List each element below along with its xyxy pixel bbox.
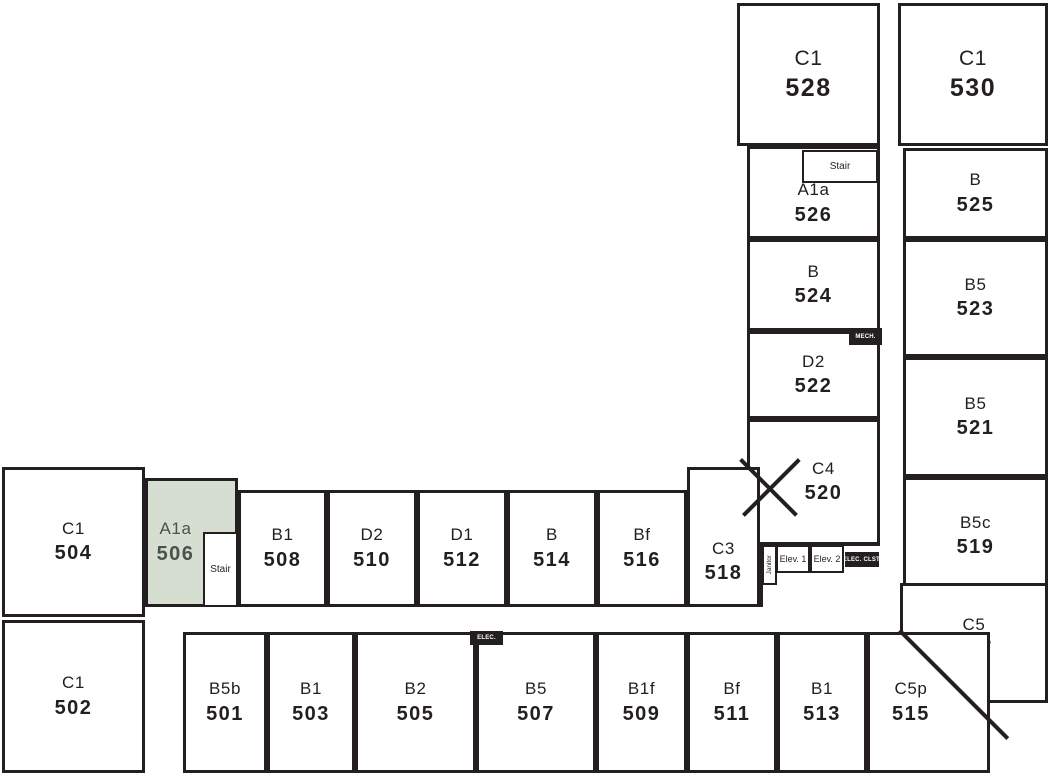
- unit-label: B5 521: [957, 393, 995, 441]
- mech-label: MECH.: [855, 334, 875, 340]
- unit-type: B1f: [623, 678, 661, 700]
- stair-room-upper: Stair: [802, 150, 878, 183]
- unit-number: 507: [517, 701, 555, 727]
- unit-510[interactable]: D2 510: [327, 490, 417, 607]
- unit-type: Bf: [714, 678, 751, 700]
- unit-number: 506: [157, 541, 195, 567]
- unit-number: 522: [795, 373, 833, 399]
- unit-label: D1 512: [443, 524, 481, 572]
- unit-number: 513: [803, 701, 841, 727]
- unit-number: 509: [623, 701, 661, 727]
- unit-number: 526: [795, 202, 833, 228]
- elevator-2-room: Elev. 2: [810, 545, 844, 573]
- unit-label: A1a 526: [795, 179, 833, 227]
- unit-type: B: [795, 261, 833, 283]
- unit-524[interactable]: B 524: [747, 239, 880, 331]
- unit-number: 501: [206, 701, 244, 727]
- unit-number: 511: [714, 701, 751, 727]
- unit-509[interactable]: B1f 509: [596, 632, 687, 773]
- unit-519[interactable]: B5c 519: [903, 477, 1048, 595]
- unit-type: B1: [803, 678, 841, 700]
- unit-type: C3: [705, 538, 743, 560]
- elec-closet: ELEC. CLST.: [845, 552, 879, 567]
- unit-type: C1: [785, 45, 831, 72]
- stair-label: Stair: [830, 161, 851, 172]
- unit-type: B2: [397, 678, 435, 700]
- unit-512[interactable]: D1 512: [417, 490, 507, 607]
- unit-number: 518: [705, 560, 743, 586]
- unit-label: B5 507: [517, 678, 555, 726]
- unit-type: Bf: [623, 524, 661, 546]
- unit-type: C4: [805, 458, 843, 480]
- unit-507[interactable]: B5 507: [476, 632, 596, 773]
- unit-502[interactable]: C1 502: [2, 620, 145, 773]
- unit-type: C5p: [892, 678, 930, 700]
- janitor-label: Janitor: [766, 555, 773, 575]
- unit-label: C1 530: [950, 45, 996, 105]
- unit-528[interactable]: C1 528: [737, 3, 880, 146]
- unit-type: A1a: [157, 518, 195, 540]
- elevator-2-label: Elev. 2: [814, 554, 841, 564]
- unit-label: B 525: [957, 169, 995, 217]
- unit-508[interactable]: B1 508: [238, 490, 327, 607]
- unit-label: B1f 509: [623, 678, 661, 726]
- unit-503[interactable]: B1 503: [267, 632, 355, 773]
- unit-type: D2: [353, 524, 391, 546]
- unit-label: B 524: [795, 261, 833, 309]
- unit-number: 521: [957, 415, 995, 441]
- unit-523[interactable]: B5 523: [903, 239, 1048, 357]
- unit-label: D2 522: [795, 351, 833, 399]
- unit-516[interactable]: Bf 516: [597, 490, 687, 607]
- unit-number: 520: [805, 480, 843, 506]
- unit-number: 519: [957, 534, 995, 560]
- unit-number: 510: [353, 547, 391, 573]
- unit-518[interactable]: C3 518: [687, 467, 760, 607]
- unit-type: B5b: [206, 678, 244, 700]
- unit-type: B5: [517, 678, 555, 700]
- stair-label: Stair: [210, 564, 231, 575]
- unit-type: B: [957, 169, 995, 191]
- unit-label: C1 502: [55, 672, 93, 720]
- unit-number: 514: [533, 547, 571, 573]
- elevator-1-label: Elev. 1: [780, 554, 807, 564]
- elec-closet-label: ELEC. CLST.: [845, 557, 879, 563]
- unit-521[interactable]: B5 521: [903, 357, 1048, 477]
- unit-514[interactable]: B 514: [507, 490, 597, 607]
- unit-label: B1 503: [292, 678, 330, 726]
- unit-type: B1: [264, 524, 302, 546]
- unit-number: 504: [55, 540, 93, 566]
- unit-number: 502: [55, 695, 93, 721]
- unit-label: B2 505: [397, 678, 435, 726]
- unit-530[interactable]: C1 530: [898, 3, 1048, 146]
- unit-label: B 514: [533, 524, 571, 572]
- unit-number: 505: [397, 701, 435, 727]
- unit-label: C4 520: [805, 458, 843, 506]
- unit-525[interactable]: B 525: [903, 148, 1048, 239]
- unit-type: D1: [443, 524, 481, 546]
- unit-label: Bf 511: [714, 678, 751, 726]
- unit-label: Bf 516: [623, 524, 661, 572]
- unit-label: B5b 501: [206, 678, 244, 726]
- unit-type: B: [533, 524, 571, 546]
- unit-type: C1: [55, 518, 93, 540]
- unit-number: 530: [950, 72, 996, 105]
- elec-room: ELEC.: [470, 631, 503, 645]
- unit-label: B1 513: [803, 678, 841, 726]
- unit-number: 508: [264, 547, 302, 573]
- unit-label: A1a 506: [157, 518, 195, 566]
- unit-number: 524: [795, 283, 833, 309]
- unit-label: C3 518: [705, 538, 743, 586]
- mech-room: MECH.: [849, 328, 882, 345]
- unit-number: 516: [623, 547, 661, 573]
- unit-label: B1 508: [264, 524, 302, 572]
- unit-type: C1: [950, 45, 996, 72]
- unit-label: D2 510: [353, 524, 391, 572]
- unit-type: B1: [292, 678, 330, 700]
- unit-label: C1 528: [785, 45, 831, 105]
- unit-label: B5c 519: [957, 512, 995, 560]
- unit-number: 528: [785, 72, 831, 105]
- unit-number: 515: [892, 701, 930, 727]
- unit-number: 503: [292, 701, 330, 727]
- stair-room-lower: Stair: [203, 532, 238, 607]
- janitor-room: Janitor: [762, 545, 777, 585]
- unit-type: B5: [957, 393, 995, 415]
- unit-501[interactable]: B5b 501: [183, 632, 267, 773]
- floor-plan: C1 528 A1a 526 B 524 D2 522 C4 520 C1 53…: [0, 0, 1054, 775]
- elevator-1-room: Elev. 1: [776, 545, 810, 573]
- unit-number: 525: [957, 192, 995, 218]
- unit-number: 523: [957, 296, 995, 322]
- unit-type: D2: [795, 351, 833, 373]
- unit-type: C1: [55, 672, 93, 694]
- unit-513[interactable]: B1 513: [777, 632, 867, 773]
- unit-label: B5 523: [957, 274, 995, 322]
- unit-505[interactable]: B2 505: [355, 632, 476, 773]
- unit-label: C5p 515: [892, 678, 930, 726]
- unit-type: B5: [957, 274, 995, 296]
- unit-504[interactable]: C1 504: [2, 467, 145, 617]
- unit-label: C1 504: [55, 518, 93, 566]
- unit-type: B5c: [957, 512, 995, 534]
- elec-label: ELEC.: [477, 635, 496, 641]
- unit-number: 512: [443, 547, 481, 573]
- unit-511[interactable]: Bf 511: [687, 632, 777, 773]
